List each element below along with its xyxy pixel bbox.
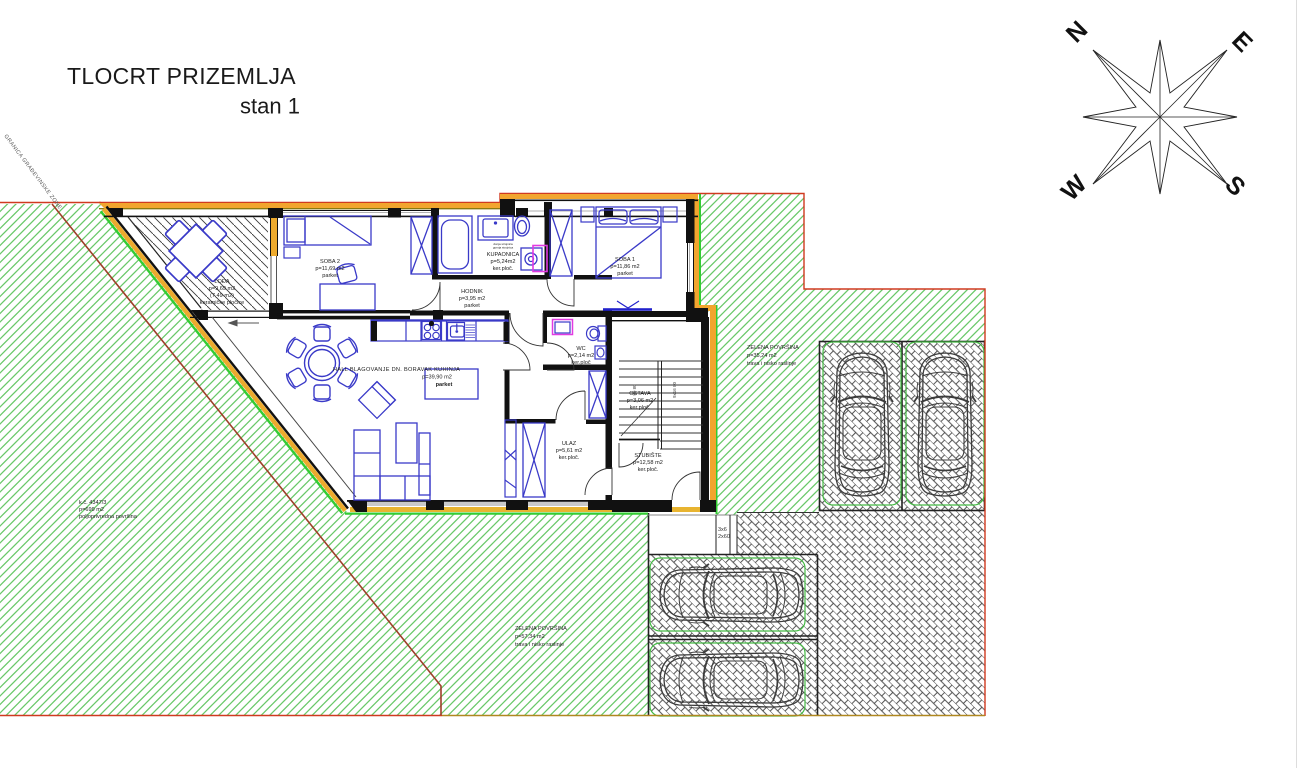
svg-text:ker.ploč.: ker.ploč. [638, 467, 659, 473]
svg-text:2x60: 2x60 [718, 534, 730, 540]
svg-text:p=9,69 m2: p=9,69 m2 [209, 286, 236, 292]
svg-text:SOBA 1: SOBA 1 [615, 257, 635, 263]
svg-text:HODNIK: HODNIK [461, 289, 483, 295]
svg-text:9x16 80: 9x16 80 [672, 381, 677, 398]
svg-text:keramičke pločice: keramičke pločice [200, 300, 244, 306]
svg-text:parket: parket [464, 303, 480, 309]
svg-text:TLOCRT PRIZEMLJA: TLOCRT PRIZEMLJA [67, 63, 296, 89]
svg-text:parket: parket [617, 271, 633, 277]
svg-text:ZELENA POVRŠINA: ZELENA POVRŠINA [515, 625, 567, 632]
svg-text:p=2,14 m2: p=2,14 m2 [568, 353, 595, 359]
svg-text:p=699 m2: p=699 m2 [79, 507, 104, 513]
svg-text:KUPAONICA: KUPAONICA [487, 252, 520, 258]
svg-text:LOĐA: LOĐA [214, 279, 230, 285]
svg-text:trava i nisko raslinje: trava i nisko raslinje [747, 361, 796, 367]
svg-text:3x6: 3x6 [718, 527, 727, 533]
svg-text:p=57,34 m2: p=57,34 m2 [515, 634, 545, 640]
svg-text:poljoprivredna površina: poljoprivredna površina [79, 514, 138, 520]
svg-text:p=39,90 m2: p=39,90 m2 [422, 375, 452, 381]
svg-text:p=5,61 m2: p=5,61 m2 [556, 448, 583, 454]
svg-text:p=12,58 m2: p=12,58 m2 [633, 460, 663, 466]
svg-text:p=5,24m2: p=5,24m2 [490, 259, 515, 265]
svg-text:ker.ploč: ker.ploč [571, 360, 590, 366]
svg-text:WC: WC [576, 346, 585, 352]
svg-text:ker.ploč.: ker.ploč. [493, 266, 514, 272]
svg-text:OSTAVA: OSTAVA [629, 391, 651, 397]
svg-text:HALL BLAGOVANJE DN. BORAVAK KU: HALL BLAGOVANJE DN. BORAVAK KUHINJA [333, 367, 460, 373]
svg-text:ker.ploč.: ker.ploč. [630, 405, 651, 411]
svg-text:parket: parket [436, 382, 453, 388]
svg-text:SOBA 2: SOBA 2 [320, 259, 340, 265]
svg-text:ULAZ: ULAZ [562, 441, 577, 447]
svg-text:parket: parket [322, 273, 338, 279]
svg-text:p=3,06 m2: p=3,06 m2 [627, 398, 654, 404]
svg-text:p=11,86 m2: p=11,86 m2 [610, 264, 639, 270]
svg-text:k.č. 4347/3: k.č. 4347/3 [79, 500, 106, 506]
svg-text:(7,49 m2): (7,49 m2) [210, 293, 234, 299]
svg-text:p=3,95 m2: p=3,95 m2 [459, 296, 486, 302]
svg-text:stan 1: stan 1 [240, 94, 300, 119]
svg-text:gornja strojnica: gornja strojnica [493, 246, 514, 250]
svg-text:ker.ploč.: ker.ploč. [559, 455, 580, 461]
svg-text:STUBIŠTE: STUBIŠTE [634, 452, 662, 459]
svg-text:trava i nisko raslinje: trava i nisko raslinje [515, 642, 564, 648]
svg-text:p=35,24 m2: p=35,24 m2 [747, 353, 777, 359]
svg-text:ZELENA POVRŠINA: ZELENA POVRŠINA [747, 344, 799, 351]
svg-text:p=11,69 m2: p=11,69 m2 [315, 266, 344, 272]
